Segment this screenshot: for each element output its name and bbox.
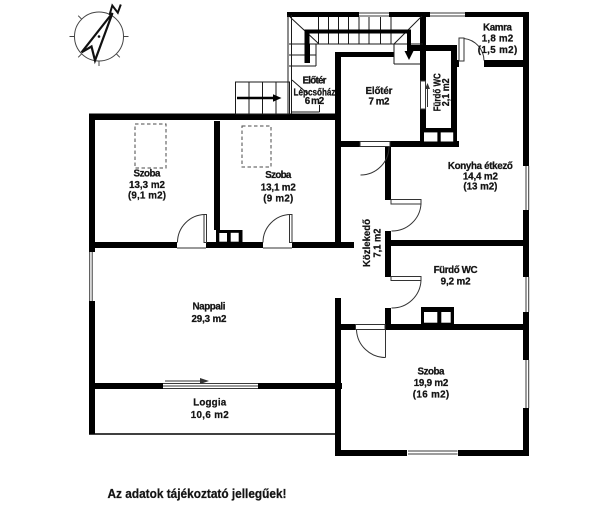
svg-text:(9,1 m2): (9,1 m2) (128, 191, 166, 202)
svg-text:Fürdő WC: Fürdő WC (434, 265, 478, 276)
svg-text:6 m2: 6 m2 (305, 96, 325, 107)
svg-text:(13 m2): (13 m2) (463, 182, 497, 193)
svg-text:2,1 m2: 2,1 m2 (441, 78, 452, 106)
svg-text:(9 m2): (9 m2) (263, 193, 293, 204)
svg-text:13,3 m2: 13,3 m2 (129, 180, 166, 191)
svg-text:Szoba: Szoba (418, 367, 446, 378)
svg-text:7 m2: 7 m2 (369, 97, 391, 108)
svg-text:10,6 m2: 10,6 m2 (191, 410, 230, 421)
svg-text:13,1 m2: 13,1 m2 (261, 182, 297, 193)
svg-text:(1,5 m2): (1,5 m2) (478, 45, 518, 56)
svg-text:Előtér: Előtér (303, 76, 327, 87)
svg-text:7,1 m2: 7,1 m2 (372, 228, 383, 258)
svg-text:(16 m2): (16 m2) (413, 389, 449, 400)
svg-text:19,9 m2: 19,9 m2 (414, 378, 449, 389)
svg-text:Kamra: Kamra (483, 22, 513, 33)
svg-text:29,3 m2: 29,3 m2 (192, 314, 228, 325)
svg-text:9,2 m2: 9,2 m2 (441, 276, 472, 287)
svg-text:1,8 m2: 1,8 m2 (482, 34, 514, 45)
svg-text:Előtér: Előtér (366, 86, 393, 97)
svg-text:Loggia: Loggia (193, 398, 227, 409)
svg-text:Az adatok tájékoztató jellegűe: Az adatok tájékoztató jellegűek! (108, 487, 287, 501)
svg-text:Szoba: Szoba (134, 168, 162, 179)
svg-text:Nappali: Nappali (193, 302, 226, 313)
svg-text:Szoba: Szoba (265, 170, 292, 181)
svg-text:Konyha étkező: Konyha étkező (448, 161, 513, 172)
svg-text:Közlekedő: Közlekedő (362, 219, 373, 267)
